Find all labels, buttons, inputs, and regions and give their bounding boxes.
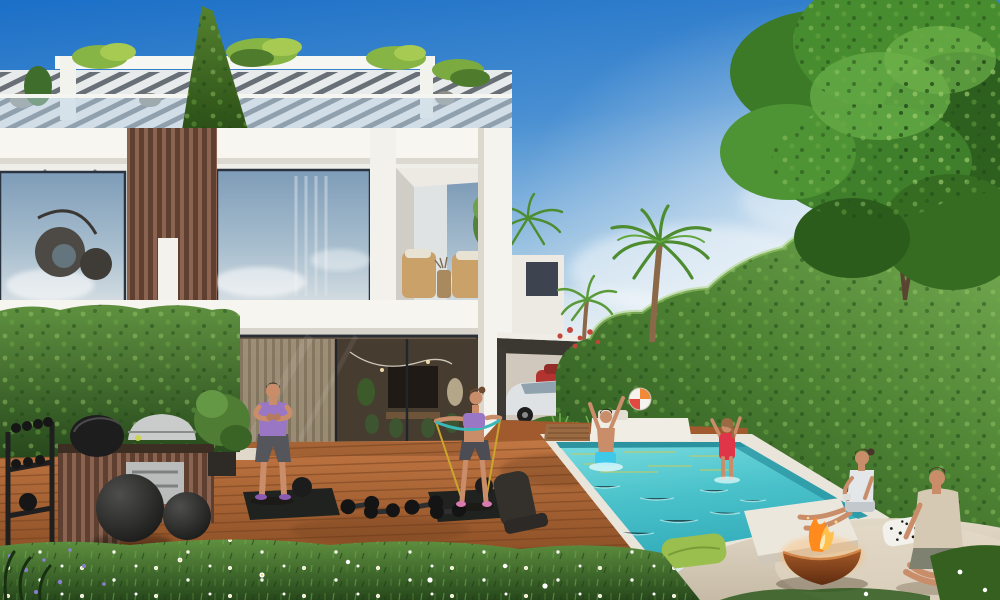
upper-left-window [0,172,125,302]
side-table [437,270,451,298]
woman-shoe [482,501,492,507]
chair-cushion [405,249,431,258]
sitting-man-head [929,470,945,486]
kettlebell [19,493,37,511]
man-shoe [255,494,267,500]
upper-middle-window [214,170,370,302]
railing-cap [0,94,512,98]
pampas-decor [447,378,463,406]
exercise-ball-large [96,474,164,542]
lemon [135,435,141,441]
phone [843,494,851,500]
boy-torso [597,428,615,456]
glass-railing [0,98,512,132]
sitting-man-tshirt [913,489,963,549]
sitting-woman-head [855,451,869,465]
white-column [370,128,396,304]
girl-splash [714,477,740,484]
interior-tv-panel [388,366,438,408]
boy-head [600,411,612,423]
roof-slab-shadow [0,158,512,164]
medicine-ball [292,477,312,497]
exercise-ball-small [163,492,211,540]
woman-head [470,392,483,405]
woman-hair-bun [479,387,486,394]
dining-table [386,412,440,419]
plant-pot [208,452,236,476]
rattan-chair [402,252,436,298]
woman-sports-bra [463,413,485,428]
man-head [266,384,280,398]
boy-splash [589,463,623,472]
daisies [0,540,700,600]
pool-waterline-far [556,442,746,448]
distant-garage-window [526,262,558,296]
backyard-scene [0,0,1000,600]
man-shoe [279,494,291,500]
rendered-photo [0,0,1000,600]
interior-plant [357,378,375,406]
beach-ball [629,388,651,410]
sphere-lamp [80,248,112,280]
grass-right-corner [930,545,1000,600]
woman-shoe [456,501,466,507]
